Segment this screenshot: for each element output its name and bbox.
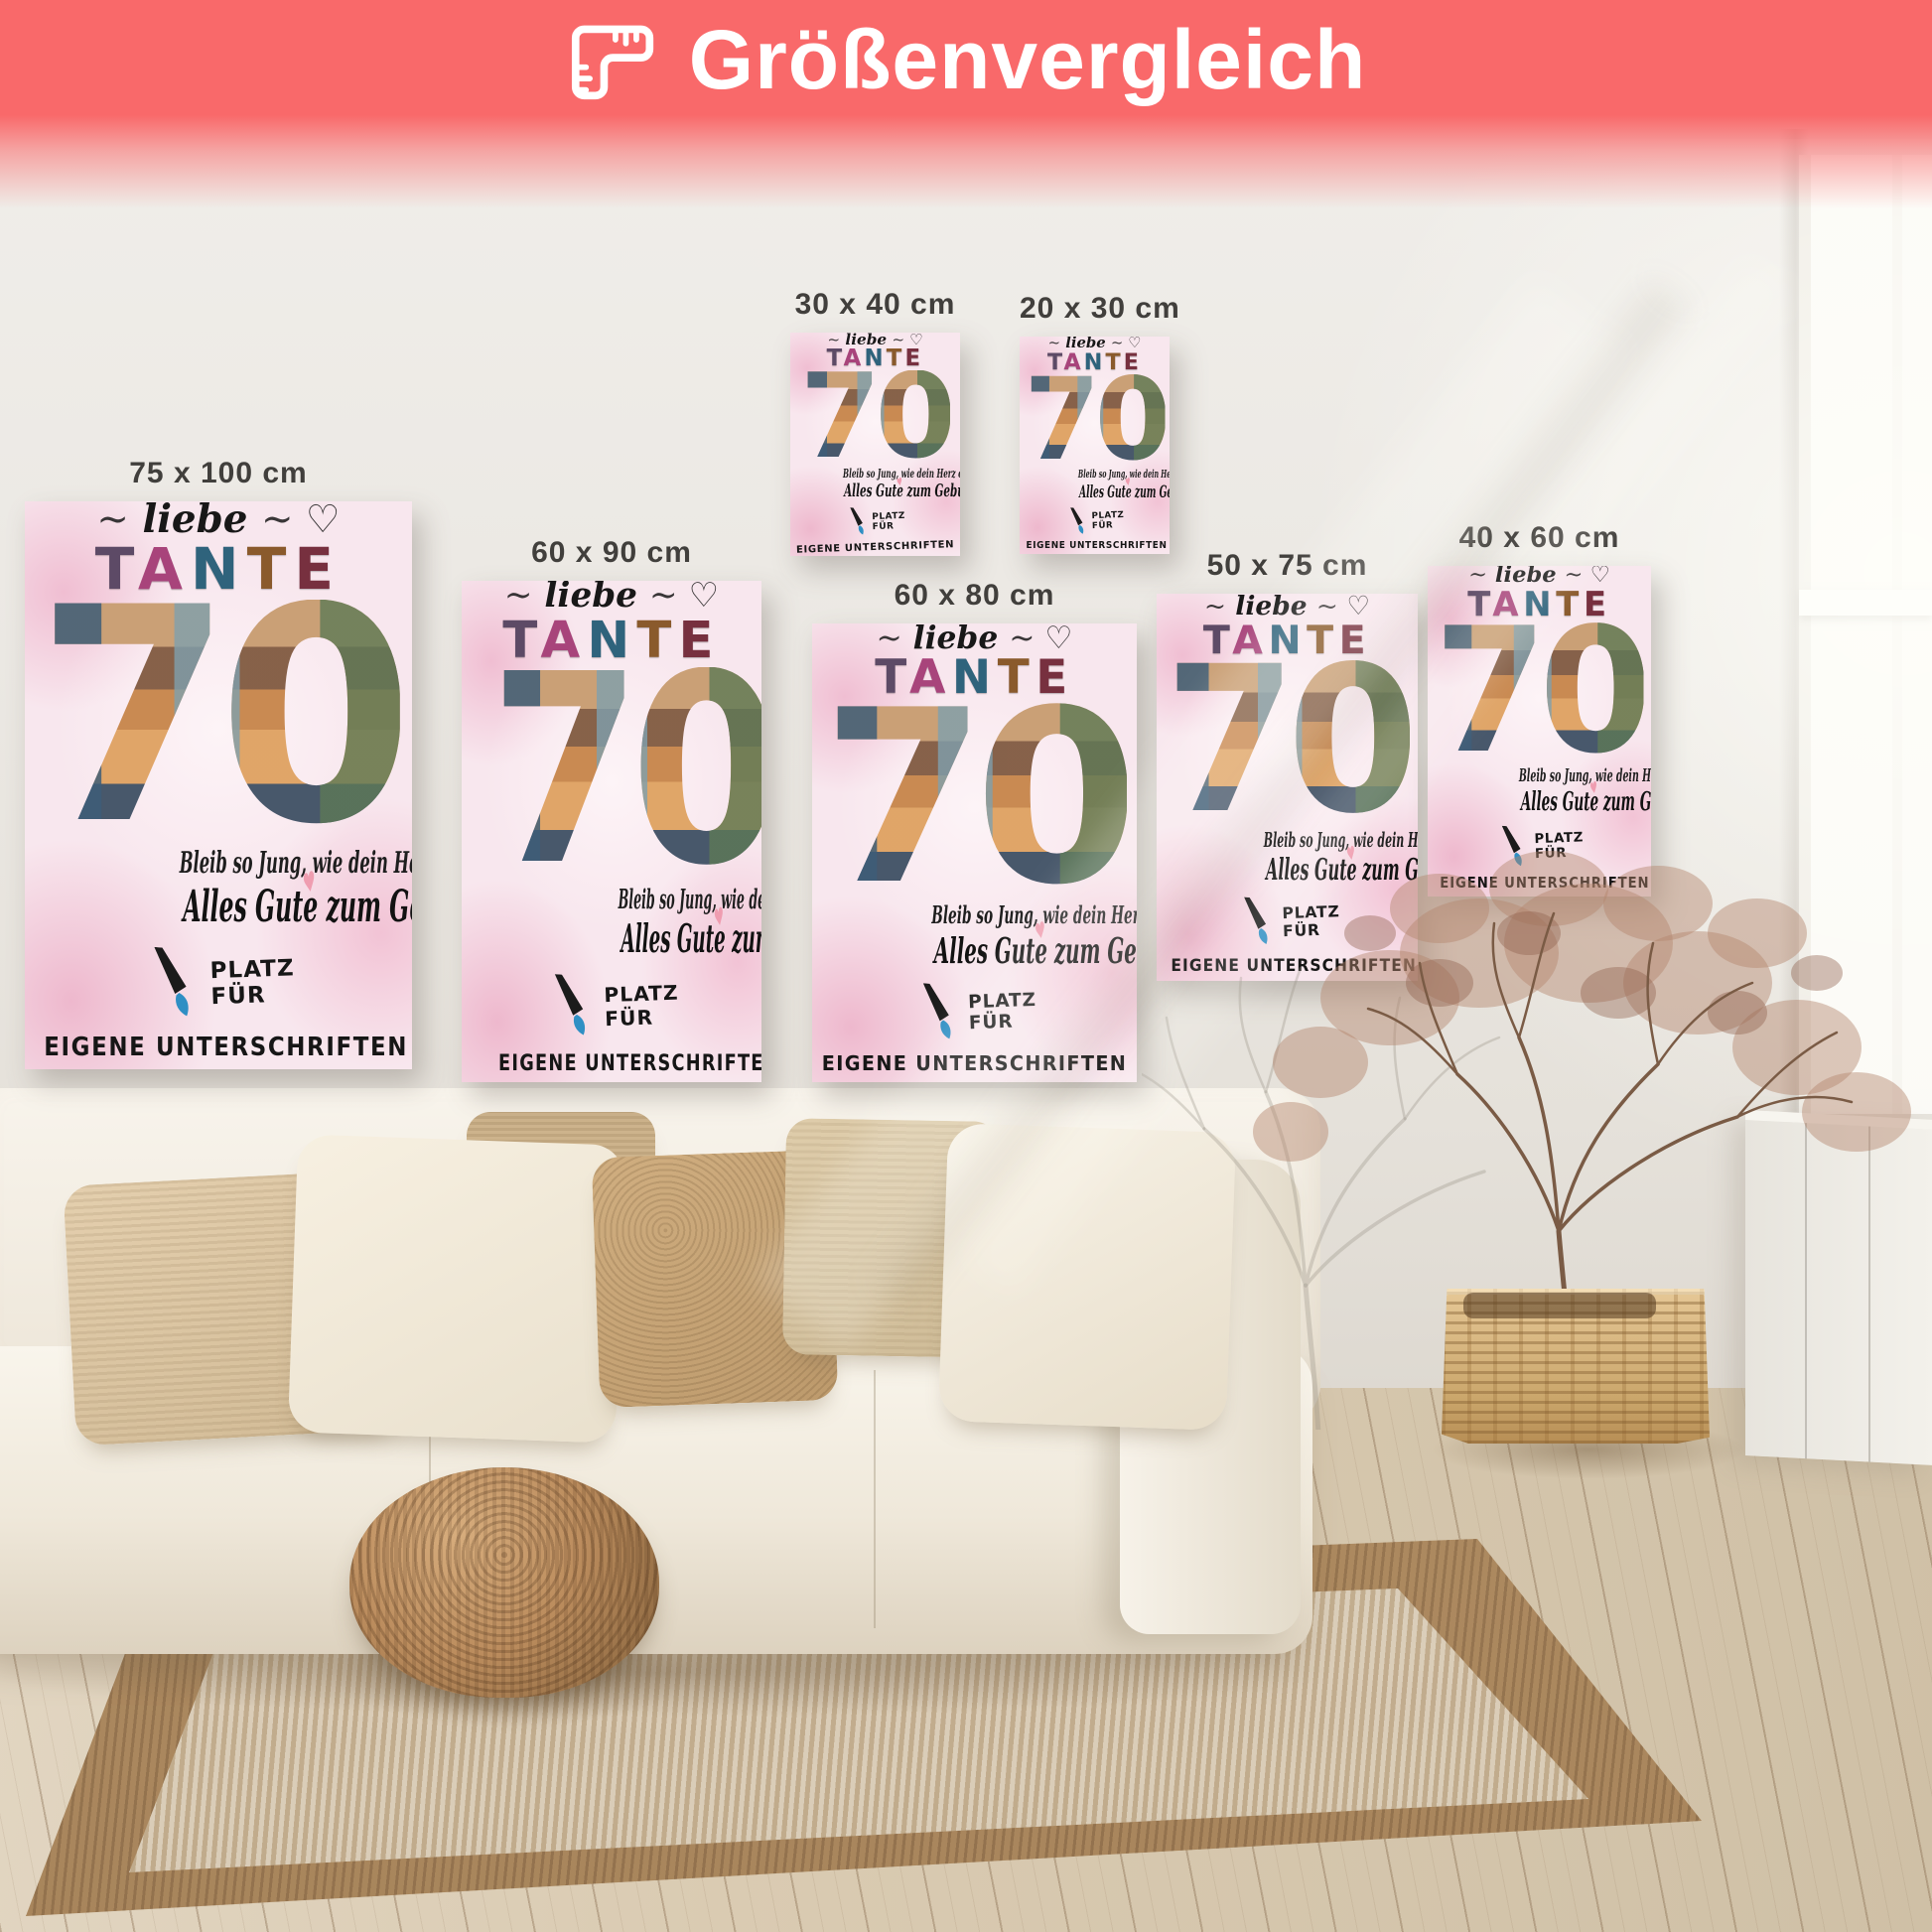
window-crossbar [1799, 590, 1932, 616]
paintbrush-icon [542, 974, 603, 1038]
panel-seams [1745, 1120, 1932, 1465]
size-label: 75 x 100 cm [25, 456, 412, 491]
poster-photo-number: 70 [800, 370, 951, 464]
size-label: 40 x 60 cm [1428, 520, 1651, 556]
swirl-decor-icon: ~ [96, 501, 129, 542]
signature-hint-line2: EIGENE UNTERSCHRIFTEN [796, 539, 955, 556]
poster: ~ liebe ~ ♡ TANTE 70 Bleib so Jung, wie … [790, 333, 960, 556]
heart-icon: ♥ [897, 476, 903, 489]
swirl-heart-decor-icon: ~ ♡ [1316, 594, 1370, 621]
poster: ~ liebe ~ ♡ TANTE 70 Bleib so Jung, wie … [812, 623, 1137, 1082]
swirl-decor-icon: ~ [1048, 337, 1060, 351]
poster-script-heading: ~ liebe ~ ♡ [462, 581, 761, 615]
ruler-icon [566, 18, 661, 103]
poster-message-line2: Alles Gute zum Geburtstag! [621, 916, 761, 962]
signature-hint-line2: EIGENE UNTERSCHRIFTEN [822, 1051, 1127, 1075]
heart-icon: ♥ [1589, 778, 1598, 799]
swirl-heart-decor-icon: ~ ♡ [892, 333, 922, 348]
poster-photo-number: 70 [1165, 660, 1410, 822]
poster-message-line1: Bleib so Jung, wie dein Herz es dir sagt… [1264, 829, 1418, 853]
pillow [288, 1134, 625, 1443]
seat-seam [874, 1370, 876, 1628]
size-label: 30 x 40 cm [790, 287, 960, 323]
poster-message-line2: Alles Gute zum Geburtstag! [183, 882, 412, 932]
paintbrush-icon [139, 946, 207, 1020]
paintbrush-icon [910, 983, 966, 1042]
paintbrush-icon [1233, 897, 1280, 946]
signature-hint-line1: PLATZ FÜR [210, 955, 297, 1010]
swirl-heart-decor-icon: ~ ♡ [1009, 623, 1072, 656]
heart-icon: ♥ [1034, 917, 1047, 946]
size-label: 20 x 30 cm [1020, 291, 1170, 327]
poster-message-line1: Bleib so Jung, wie dein Herz es dir sagt… [1078, 468, 1170, 481]
basket-opening [1463, 1293, 1656, 1318]
swirl-decor-icon: ~ [876, 623, 901, 656]
signature-hint-line2: EIGENE UNTERSCHRIFTEN [498, 1050, 761, 1076]
signature-hint-line1: PLATZ FÜR [604, 980, 680, 1031]
swirl-heart-decor-icon: ~ ♡ [649, 581, 719, 616]
window-mullion [1892, 155, 1902, 1114]
wicker-basket [1442, 1289, 1710, 1444]
poster-photo-number: 70 [822, 703, 1127, 895]
poster-message-line1: Bleib so Jung, wie dein Herz es dir sagt… [1519, 766, 1651, 786]
poster: ~ liebe ~ ♡ TANTE 70 Bleib so Jung, wie … [1157, 594, 1418, 981]
poster: ~ liebe ~ ♡ TANTE 70 Bleib so Jung, wie … [25, 501, 412, 1069]
size-label: 60 x 90 cm [462, 535, 761, 571]
poster-message-line1: Bleib so Jung, wie dein Herz es dir sagt… [180, 847, 412, 882]
poster: ~ liebe ~ ♡ TANTE 70 Bleib so Jung, wie … [1428, 566, 1651, 897]
poster-message-line2: Alles Gute zum Geburtstag! [1521, 787, 1651, 817]
paintbrush-icon [1064, 507, 1090, 535]
pillow [938, 1123, 1236, 1431]
poster-message-line1: Bleib so Jung, wie dein Herz es dir sagt… [619, 886, 761, 916]
signature-hint-line1: PLATZ FÜR [1091, 510, 1124, 531]
size-label: 60 x 80 cm [812, 578, 1137, 614]
signature-hint-line2: EIGENE UNTERSCHRIFTEN [44, 1032, 408, 1061]
signature-hint-line1: PLATZ FÜR [1535, 830, 1586, 862]
signature-hint-line2: EIGENE UNTERSCHRIFTEN [1027, 540, 1168, 551]
poster-photo-number: 70 [1024, 374, 1165, 465]
swirl-heart-decor-icon: ~ ♡ [1565, 566, 1610, 588]
paintbrush-icon [844, 507, 871, 536]
poster-photo-number: 70 [1435, 622, 1645, 760]
swirl-heart-decor-icon: ~ ♡ [1111, 337, 1141, 351]
signature-hint-line1: PLATZ FÜR [872, 511, 905, 532]
poster: ~ liebe ~ ♡ TANTE 70 Bleib so Jung, wie … [1020, 337, 1170, 554]
poster-message-line2: Alles Gute zum Geburtstag! [1079, 482, 1170, 501]
swirl-decor-icon: ~ [827, 333, 840, 348]
paintbrush-icon [1493, 825, 1533, 868]
poster-photo-number: 70 [37, 600, 401, 837]
header-banner: Größenvergleich [0, 0, 1932, 210]
banner-title: Größenvergleich [689, 12, 1367, 108]
signature-hint-line1: PLATZ FÜR [968, 990, 1037, 1034]
radiator-panel [1745, 1110, 1932, 1465]
window [1799, 155, 1932, 1114]
swirl-decor-icon: ~ [1204, 594, 1226, 621]
poster-script-heading: ~ liebe ~ ♡ [1157, 594, 1418, 621]
poster-photo-number: 70 [489, 667, 761, 877]
poster: ~ liebe ~ ♡ TANTE 70 Bleib so Jung, wie … [462, 581, 761, 1082]
poster-message-line2: Alles Gute zum Geburtstag! [1266, 853, 1418, 888]
size-label: 50 x 75 cm [1157, 548, 1418, 584]
swirl-decor-icon: ~ [1468, 566, 1487, 588]
product-size-comparison-image: 75 x 100 cm ~ liebe ~ ♡ TANTE 70 Bleib s… [0, 0, 1932, 1932]
signature-hint-line2: EIGENE UNTERSCHRIFTEN [1171, 956, 1417, 976]
signature-hint-line1: PLATZ FÜR [1282, 902, 1340, 940]
wicker-pouf [349, 1467, 659, 1698]
signature-hint-line2: EIGENE UNTERSCHRIFTEN [1440, 875, 1649, 892]
swirl-decor-icon: ~ [504, 581, 533, 616]
swirl-heart-decor-icon: ~ ♡ [261, 501, 341, 542]
